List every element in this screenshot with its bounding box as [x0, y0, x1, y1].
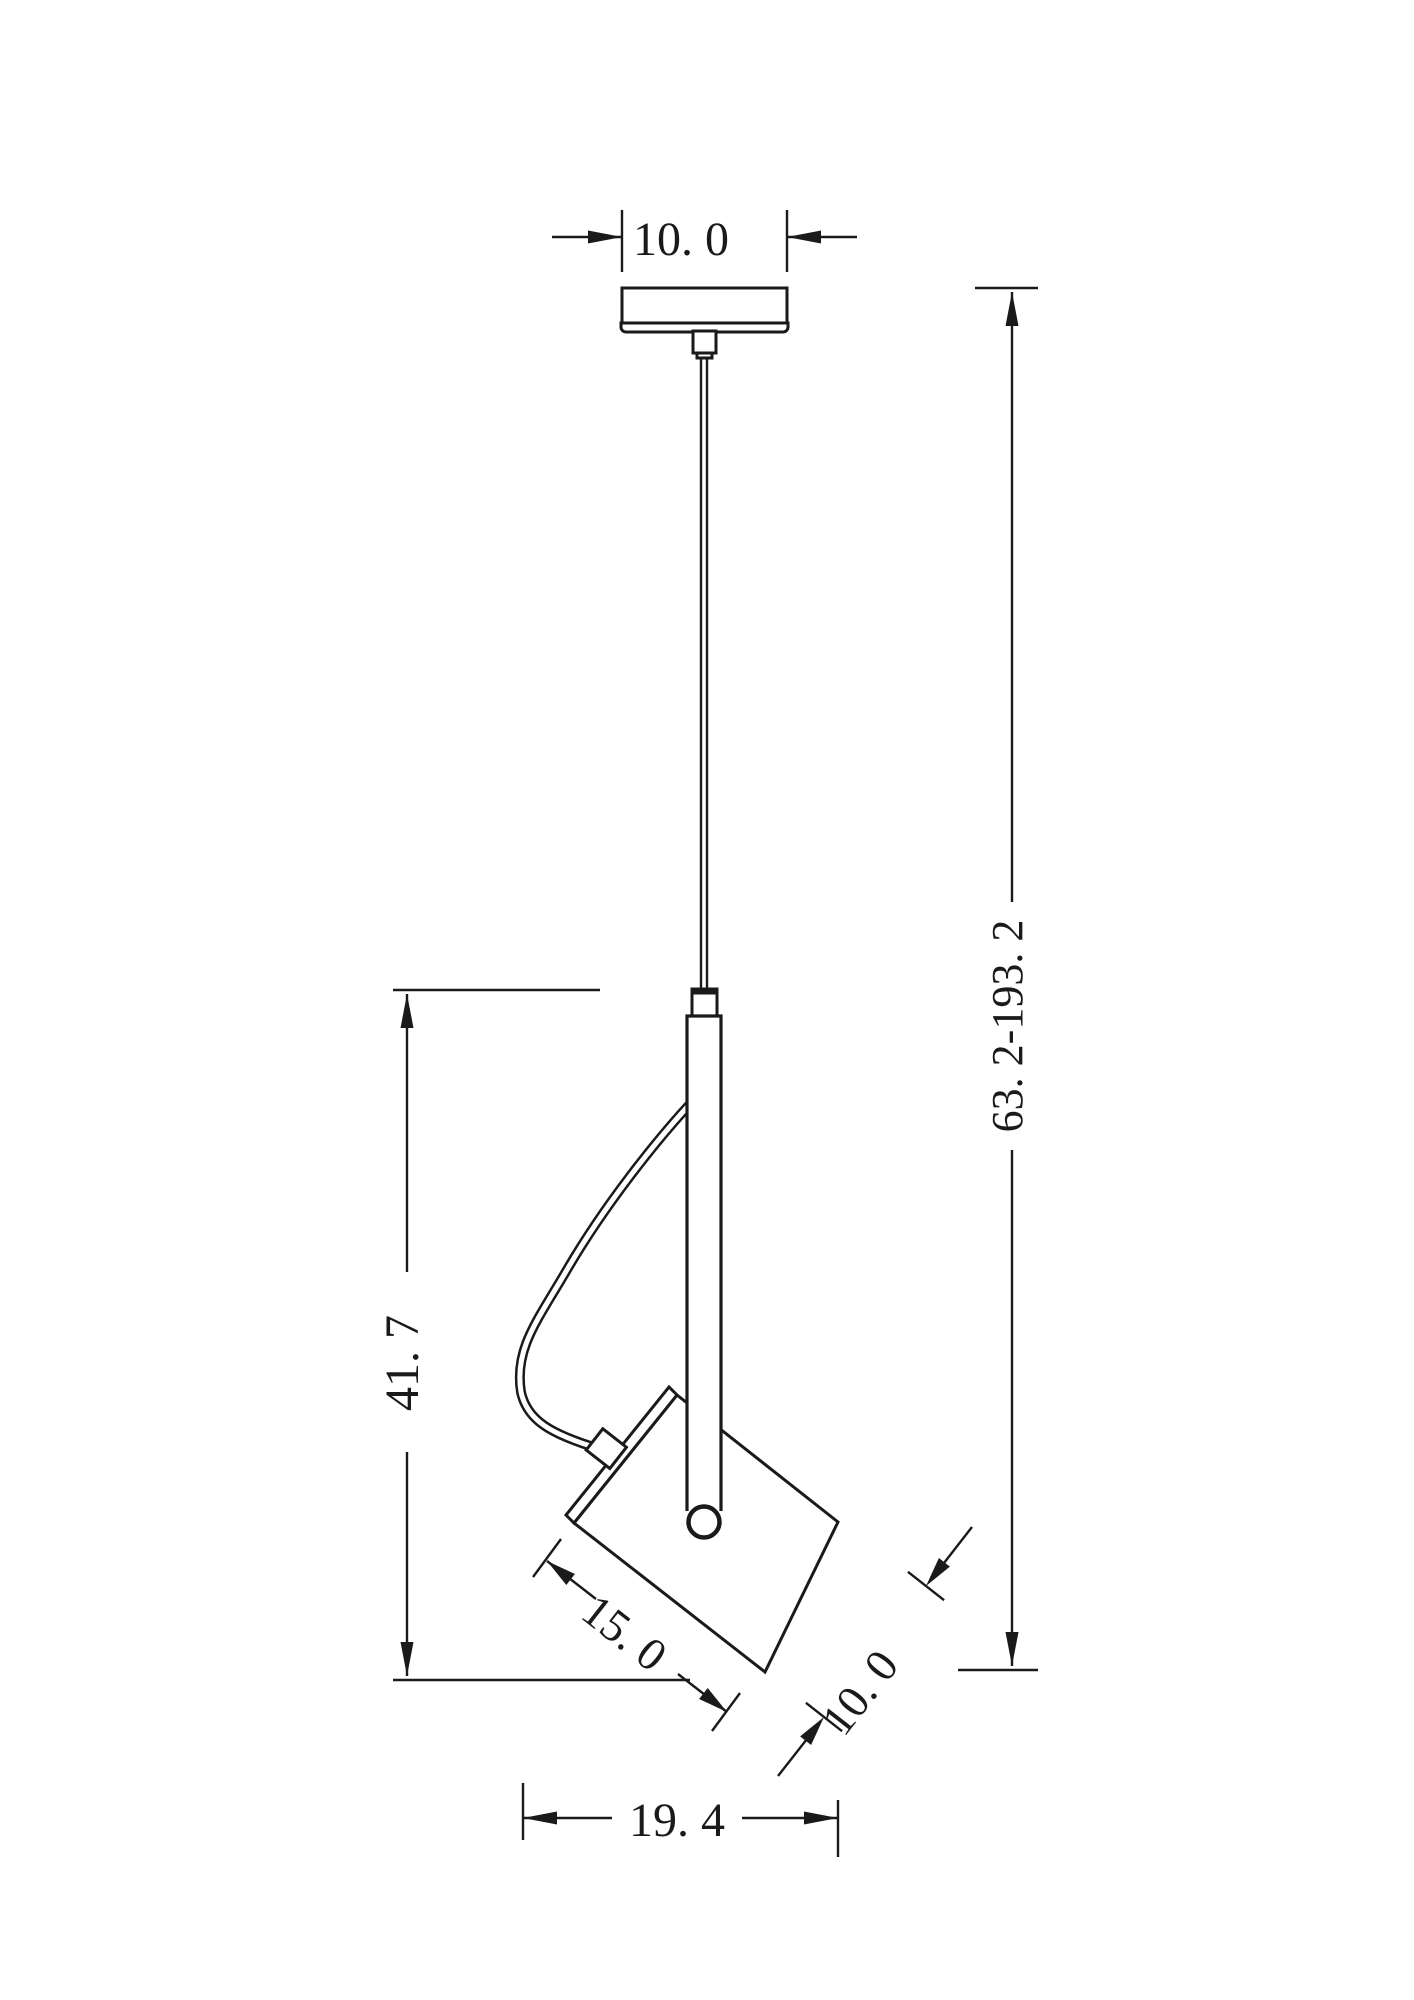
leader-line: [944, 1527, 972, 1563]
arrowhead-upleft-icon: [547, 1561, 575, 1585]
lamp-aperture: [689, 1507, 720, 1538]
technical-drawing-page: 10. 0 63. 2-193. 2 41. 7: [0, 0, 1414, 2000]
dimension-label: 10. 0: [633, 213, 729, 266]
arrowhead-down-icon: [1006, 1632, 1019, 1666]
dimension-canopy-width: 10. 0: [552, 210, 857, 272]
arrowhead-up-icon: [401, 994, 414, 1028]
rod-tube: [687, 1016, 721, 1511]
arrowhead-downright-icon: [699, 1688, 727, 1712]
fixture: [520, 288, 838, 1672]
dimension-label: 15. 0: [573, 1584, 677, 1681]
arrowhead-left-icon: [523, 1812, 557, 1825]
dimension-label: 63. 2-193. 2: [983, 920, 1032, 1133]
arrowhead-right-icon: [588, 231, 622, 244]
arrowhead-right-icon: [804, 1812, 838, 1825]
dimension-label: 19. 4: [629, 1794, 725, 1847]
dimension-label: 10. 0: [811, 1641, 908, 1745]
arrowhead-downleft-icon: [926, 1558, 950, 1586]
dimension-suspension-height: 63. 2-193. 2: [958, 288, 1038, 1670]
leader-line: [778, 1739, 807, 1776]
arrowhead-down-icon: [401, 1642, 414, 1676]
ceiling-canopy-body: [622, 288, 787, 323]
canopy-stem: [693, 331, 716, 353]
dimension-label: 41. 7: [376, 1315, 429, 1411]
dimension-overall-width: 19. 4: [523, 1783, 838, 1857]
arrowhead-up-icon: [1006, 292, 1019, 326]
drawing-canvas: 10. 0 63. 2-193. 2 41. 7: [0, 0, 1414, 2000]
canopy-stem-step: [697, 353, 712, 358]
arrowhead-left-icon: [787, 231, 821, 244]
